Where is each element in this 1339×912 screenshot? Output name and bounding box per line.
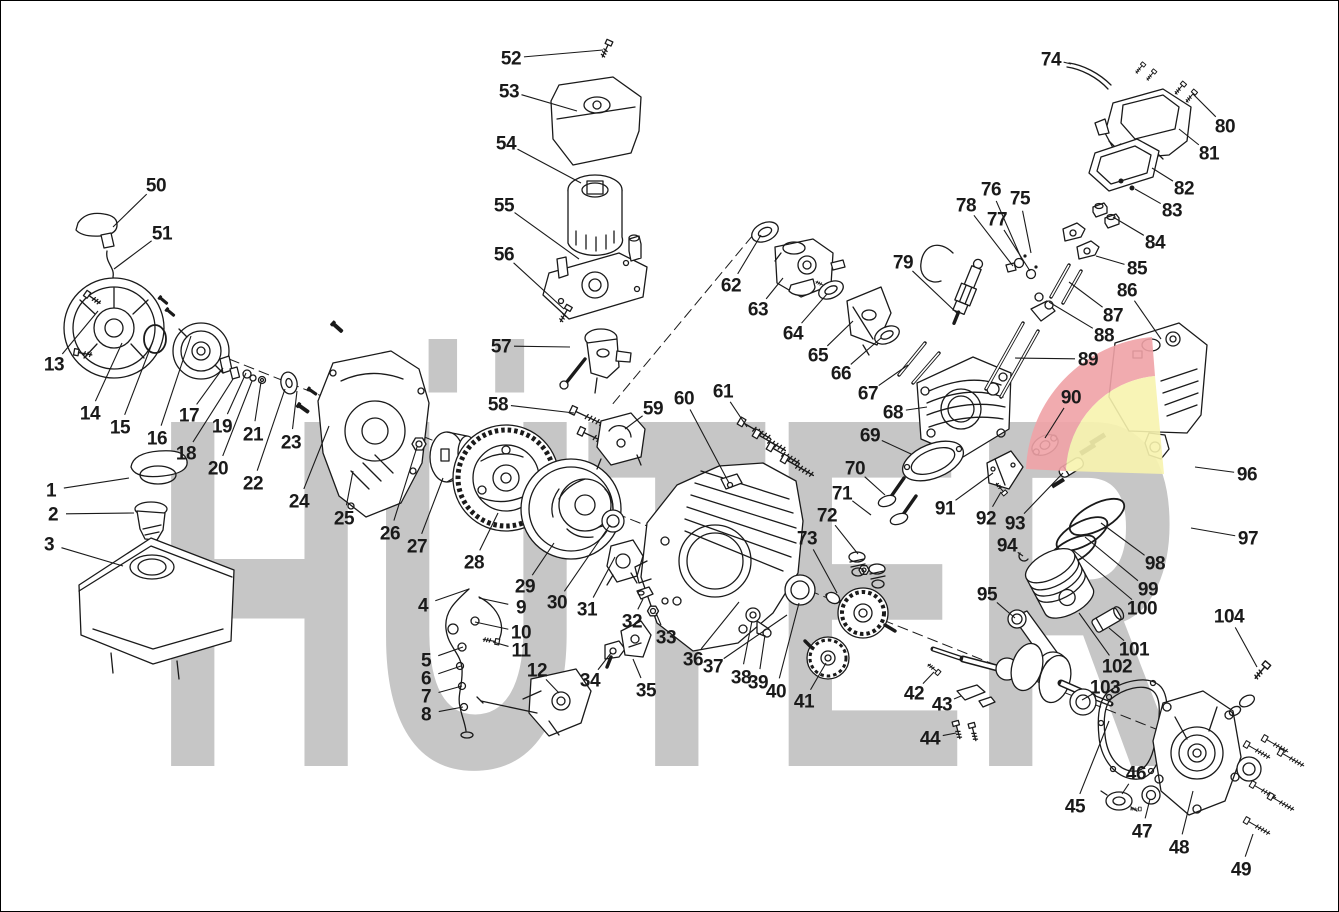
part-label-93: 93 xyxy=(1005,514,1025,535)
leader-line-62 xyxy=(738,235,761,274)
part-label-84: 84 xyxy=(1145,233,1166,254)
leader-line-13 xyxy=(62,311,98,354)
leader-line-74 xyxy=(1064,62,1071,64)
leader-line-52 xyxy=(524,50,603,57)
part-label-9: 9 xyxy=(516,598,526,619)
leader-line-7 xyxy=(439,686,462,693)
leader-line-2 xyxy=(66,513,134,514)
leader-line-54 xyxy=(517,149,581,183)
leader-line-5 xyxy=(438,647,463,656)
leader-line-38 xyxy=(744,621,752,664)
leader-line-57 xyxy=(514,346,570,347)
part-label-20: 20 xyxy=(208,459,228,480)
part-label-34: 34 xyxy=(580,671,601,692)
leader-line-37 xyxy=(724,615,787,659)
leader-line-34 xyxy=(598,653,611,670)
leader-line-45 xyxy=(1080,721,1109,794)
part-label-98: 98 xyxy=(1145,554,1165,575)
part-label-80: 80 xyxy=(1215,117,1235,138)
part-label-19: 19 xyxy=(212,417,232,438)
part-label-4: 4 xyxy=(418,596,429,617)
part-label-67: 67 xyxy=(858,384,878,405)
part-label-96: 96 xyxy=(1237,465,1257,486)
part-label-100: 100 xyxy=(1127,599,1157,620)
part-label-36: 36 xyxy=(683,650,703,671)
leader-line-11 xyxy=(493,642,509,646)
leader-line-87 xyxy=(1069,282,1103,307)
part-label-104: 104 xyxy=(1214,607,1245,628)
leader-line-49 xyxy=(1245,834,1253,857)
part-label-99: 99 xyxy=(1138,580,1158,601)
leader-line-26 xyxy=(394,447,417,521)
part-label-60: 60 xyxy=(674,389,694,410)
leader-line-100 xyxy=(1073,550,1132,600)
leader-line-77 xyxy=(1004,230,1030,271)
part-label-97: 97 xyxy=(1238,529,1258,550)
part-label-1: 1 xyxy=(46,481,57,502)
leader-line-89 xyxy=(1015,358,1075,359)
leader-line-14 xyxy=(95,343,122,401)
part-label-70: 70 xyxy=(845,459,865,480)
part-label-24: 24 xyxy=(289,492,310,513)
part-label-32: 32 xyxy=(622,612,642,633)
leader-line-44 xyxy=(943,733,956,736)
part-label-17: 17 xyxy=(179,406,199,427)
part-label-8: 8 xyxy=(421,705,431,726)
leader-line-66 xyxy=(851,338,881,364)
callout-labels-layer: 1234567891011121314151617181920212223242… xyxy=(1,1,1339,912)
part-label-47: 47 xyxy=(1132,822,1152,843)
leader-line-61 xyxy=(730,402,747,427)
leader-line-19 xyxy=(227,373,246,414)
leader-line-43 xyxy=(954,696,961,699)
leader-line-33 xyxy=(656,613,661,625)
part-label-25: 25 xyxy=(334,509,355,530)
part-label-86: 86 xyxy=(1117,281,1137,302)
part-label-54: 54 xyxy=(496,134,517,155)
leader-line-47 xyxy=(1145,799,1150,818)
part-label-76: 76 xyxy=(981,180,1001,201)
part-label-78: 78 xyxy=(956,196,976,217)
part-label-30: 30 xyxy=(547,593,567,614)
leader-line-8 xyxy=(439,707,463,712)
leader-line-10 xyxy=(475,622,508,629)
part-label-68: 68 xyxy=(883,403,903,424)
leader-line-48 xyxy=(1182,791,1193,834)
leader-line-82 xyxy=(1152,168,1173,181)
leader-line-15 xyxy=(125,341,153,415)
part-label-14: 14 xyxy=(80,404,101,425)
leader-line-31 xyxy=(593,557,615,598)
part-label-73: 73 xyxy=(797,529,817,550)
part-label-50: 50 xyxy=(146,176,166,197)
leader-line-70 xyxy=(865,477,885,495)
leader-line-97 xyxy=(1191,528,1235,536)
leader-line-28 xyxy=(480,513,498,550)
parts-diagram-page: HÜTER xyxy=(0,0,1339,912)
leader-line-53 xyxy=(521,95,577,111)
part-label-58: 58 xyxy=(488,395,508,416)
leader-line-71 xyxy=(852,501,871,515)
part-label-75: 75 xyxy=(1010,189,1031,210)
leader-line-4 xyxy=(435,589,469,601)
part-label-95: 95 xyxy=(977,585,998,606)
leader-line-39 xyxy=(760,635,765,669)
leader-line-12 xyxy=(546,679,559,693)
leader-line-23 xyxy=(293,391,297,429)
part-label-42: 42 xyxy=(904,684,924,705)
leader-line-65 xyxy=(827,321,853,346)
leader-line-24 xyxy=(304,426,329,489)
part-label-27: 27 xyxy=(407,537,427,558)
part-label-11: 11 xyxy=(511,641,531,662)
part-label-31: 31 xyxy=(577,600,598,621)
part-label-52: 52 xyxy=(501,49,521,70)
leader-line-75 xyxy=(1023,211,1031,253)
leader-line-63 xyxy=(766,278,783,299)
leader-line-83 xyxy=(1135,189,1161,204)
part-label-43: 43 xyxy=(932,695,952,716)
part-label-71: 71 xyxy=(832,484,853,505)
part-label-102: 102 xyxy=(1102,657,1132,678)
leader-line-51 xyxy=(114,241,152,269)
part-label-12: 12 xyxy=(527,661,547,682)
leader-line-86 xyxy=(1134,301,1161,339)
part-label-16: 16 xyxy=(147,429,167,450)
leader-line-1 xyxy=(64,478,129,488)
part-label-57: 57 xyxy=(491,337,511,358)
part-label-87: 87 xyxy=(1103,306,1123,327)
leader-line-9 xyxy=(479,598,508,604)
part-label-23: 23 xyxy=(281,433,301,454)
part-label-41: 41 xyxy=(794,692,815,713)
part-label-15: 15 xyxy=(110,418,131,439)
leader-line-96 xyxy=(1195,467,1234,472)
leader-line-41 xyxy=(811,663,826,690)
leader-line-104 xyxy=(1235,627,1257,667)
leader-line-59 xyxy=(625,416,643,429)
part-label-85: 85 xyxy=(1127,259,1148,280)
part-label-89: 89 xyxy=(1078,350,1098,371)
leader-line-80 xyxy=(1193,94,1216,117)
leader-line-102 xyxy=(1079,613,1109,655)
part-label-33: 33 xyxy=(656,628,676,649)
part-label-61: 61 xyxy=(713,382,734,403)
part-label-28: 28 xyxy=(464,553,484,574)
part-label-48: 48 xyxy=(1169,838,1189,859)
leader-line-90 xyxy=(1045,408,1064,438)
part-label-46: 46 xyxy=(1126,764,1146,785)
part-label-22: 22 xyxy=(243,474,263,495)
part-label-74: 74 xyxy=(1041,50,1062,71)
part-label-37: 37 xyxy=(703,657,723,678)
part-label-83: 83 xyxy=(1162,201,1182,222)
leader-line-93 xyxy=(1024,473,1063,514)
part-label-29: 29 xyxy=(515,577,535,598)
part-label-88: 88 xyxy=(1094,326,1114,347)
part-label-55: 55 xyxy=(494,196,515,217)
part-label-90: 90 xyxy=(1061,388,1081,409)
leader-line-64 xyxy=(802,294,827,323)
leader-line-29 xyxy=(532,543,554,575)
part-label-72: 72 xyxy=(817,506,837,527)
part-label-13: 13 xyxy=(44,355,64,376)
part-label-53: 53 xyxy=(499,82,519,103)
leader-line-67 xyxy=(879,365,908,386)
part-label-40: 40 xyxy=(766,682,786,703)
part-label-64: 64 xyxy=(783,324,804,345)
leader-line-17 xyxy=(197,368,223,404)
leader-line-85 xyxy=(1096,256,1125,264)
part-label-82: 82 xyxy=(1174,179,1194,200)
part-label-51: 51 xyxy=(152,224,173,245)
part-label-45: 45 xyxy=(1065,797,1086,818)
leader-line-56 xyxy=(514,263,564,309)
leader-line-50 xyxy=(113,194,147,227)
part-label-56: 56 xyxy=(494,245,514,266)
part-label-18: 18 xyxy=(176,444,196,465)
leader-line-95 xyxy=(997,602,1015,618)
part-label-63: 63 xyxy=(748,300,768,321)
leader-line-81 xyxy=(1179,129,1199,145)
leader-line-6 xyxy=(438,666,461,674)
leader-line-69 xyxy=(882,440,911,454)
leader-line-35 xyxy=(633,659,641,678)
part-label-77: 77 xyxy=(987,210,1007,231)
leader-line-27 xyxy=(422,478,443,534)
part-label-26: 26 xyxy=(380,524,400,545)
leader-line-91 xyxy=(956,473,993,500)
leader-line-36 xyxy=(701,602,739,649)
part-label-81: 81 xyxy=(1199,144,1220,165)
leader-line-30 xyxy=(564,525,610,591)
leader-line-84 xyxy=(1113,217,1144,235)
leader-line-99 xyxy=(1085,537,1138,581)
part-label-92: 92 xyxy=(976,509,996,530)
leader-line-42 xyxy=(923,672,934,684)
part-label-2: 2 xyxy=(48,505,58,526)
part-label-3: 3 xyxy=(44,535,54,556)
part-label-103: 103 xyxy=(1090,678,1120,699)
part-label-79: 79 xyxy=(893,253,913,274)
leader-line-92 xyxy=(992,492,1001,507)
leader-line-79 xyxy=(912,271,959,315)
leader-line-32 xyxy=(638,599,643,609)
leader-line-25 xyxy=(346,471,353,505)
leader-line-40 xyxy=(779,603,799,678)
leader-line-58 xyxy=(511,406,574,413)
leader-line-68 xyxy=(906,407,927,410)
leader-line-21 xyxy=(255,382,261,421)
part-label-59: 59 xyxy=(643,399,663,420)
leader-line-55 xyxy=(515,213,579,259)
leader-line-73 xyxy=(813,549,837,593)
part-label-62: 62 xyxy=(721,276,741,297)
leader-line-98 xyxy=(1101,523,1145,555)
leader-line-46 xyxy=(1122,784,1129,794)
part-label-69: 69 xyxy=(860,426,880,447)
part-label-44: 44 xyxy=(920,729,941,750)
part-label-94: 94 xyxy=(997,536,1018,557)
part-label-91: 91 xyxy=(935,499,956,520)
part-label-21: 21 xyxy=(243,425,264,446)
leader-line-60 xyxy=(690,409,729,483)
leader-line-3 xyxy=(61,548,123,566)
leader-line-94 xyxy=(1018,552,1023,556)
part-label-65: 65 xyxy=(808,346,829,367)
part-label-66: 66 xyxy=(831,364,851,385)
leader-line-72 xyxy=(835,525,858,554)
part-label-49: 49 xyxy=(1231,860,1251,881)
leader-line-88 xyxy=(1049,302,1093,328)
part-label-35: 35 xyxy=(636,681,657,702)
